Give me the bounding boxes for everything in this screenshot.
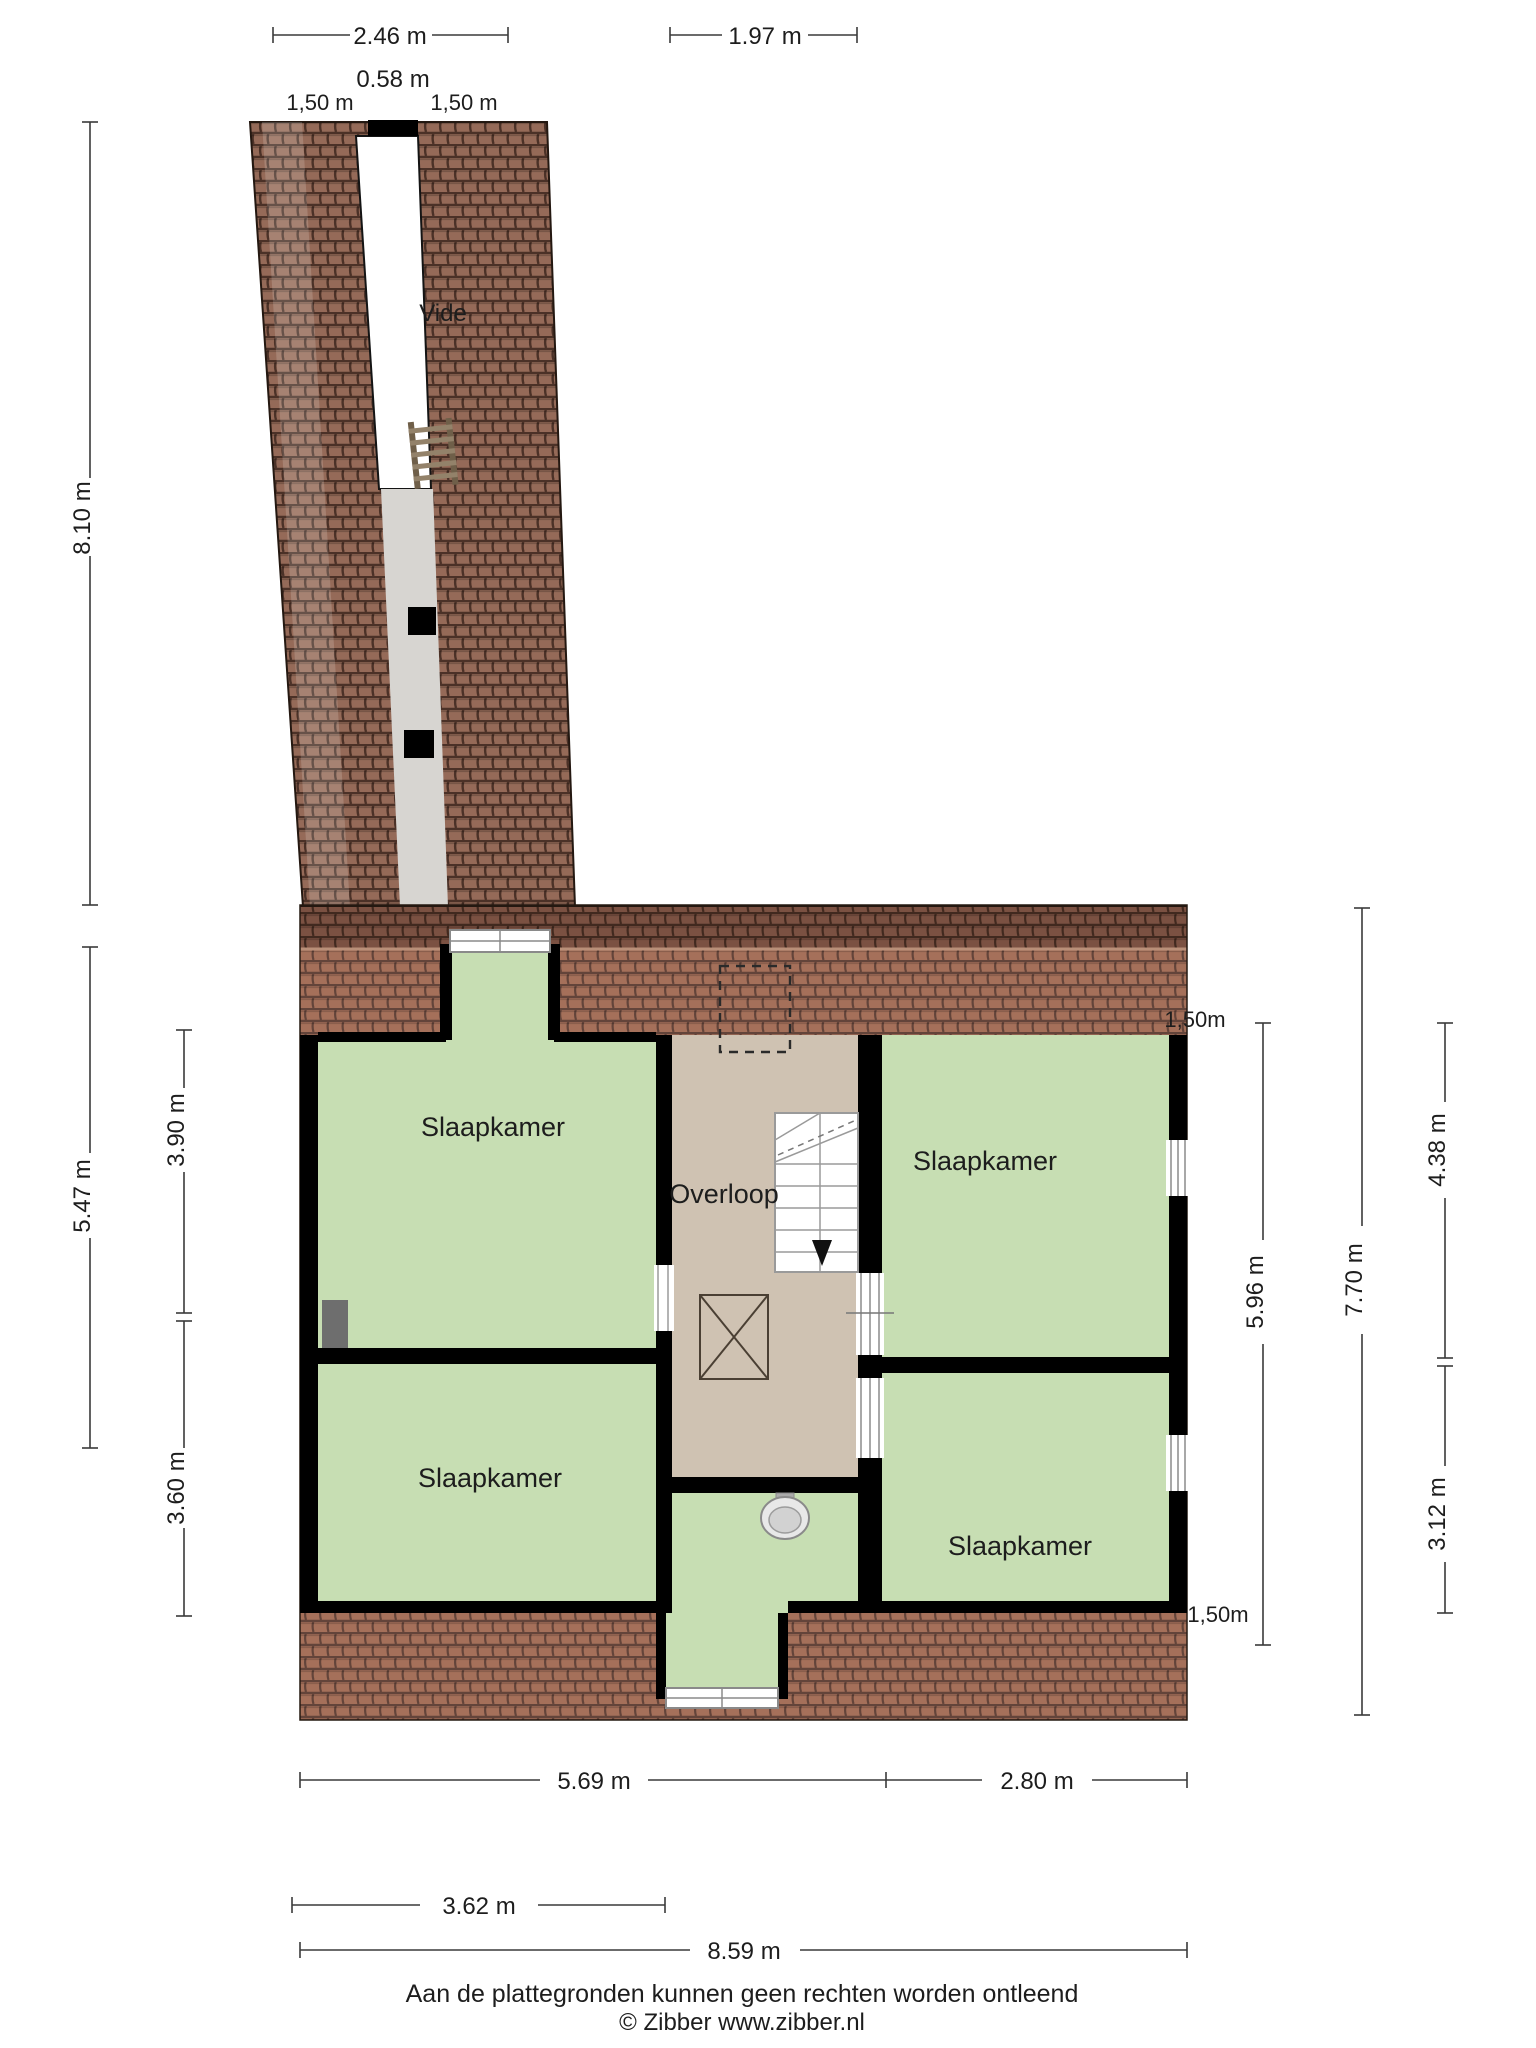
- wall-left-bedrooms: [300, 1348, 656, 1364]
- dim-label-5-69: 5.69 m: [557, 1768, 630, 1795]
- window-right-wall-upper: [1166, 1140, 1190, 1196]
- window-bottom-bump: [666, 1688, 778, 1708]
- label-bedroom-bottom-right: Slaapkamer: [948, 1531, 1092, 1561]
- dim-label-5-96: 5.96 m: [1242, 1255, 1269, 1328]
- dormer-area: [440, 948, 560, 1040]
- footer-disclaimer: Aan de plattegronden kunnen geen rechten…: [406, 1980, 1079, 2008]
- label-bedroom-top-right: Slaapkamer: [913, 1146, 1057, 1176]
- floor-plan-svg: Vide: [0, 0, 1536, 2048]
- dim-label-5-47: 5.47 m: [69, 1159, 96, 1232]
- footer-credit: © Zibber www.zibber.nl: [619, 2009, 865, 2036]
- dormer-wall-right: [548, 944, 560, 1040]
- dim-label-7-70: 7.70 m: [1341, 1243, 1368, 1316]
- window-right-divider-lower: [856, 1378, 884, 1458]
- room-bedroom-top-left: [318, 1035, 656, 1348]
- dim-label-2-80: 2.80 m: [1000, 1768, 1073, 1795]
- door-opening-left-divider: [654, 1265, 674, 1331]
- dim-label-0-58: 0.58 m: [356, 66, 429, 93]
- label-bedroom-top-left: Slaapkamer: [421, 1112, 565, 1142]
- floorplan-page: Vide: [0, 0, 1536, 2048]
- dim-label-4-38: 4.38 m: [1424, 1113, 1451, 1186]
- dim-label-1-97: 1.97 m: [728, 23, 801, 50]
- chimney-block-lower: [404, 730, 434, 758]
- dim-label-1-50-right: 1,50 m: [430, 90, 497, 115]
- roof-band-top-ridge: [300, 905, 1187, 949]
- vide-label: Vide: [419, 300, 467, 327]
- bump-wall-left: [656, 1613, 666, 1699]
- dim-label-3-90: 3.90 m: [163, 1093, 190, 1166]
- dim-label-2-46: 2.46 m: [353, 23, 426, 50]
- rooms: [318, 948, 1169, 1699]
- chimney-breast: [322, 1300, 348, 1348]
- dim-label-3-60: 3.60 m: [163, 1451, 190, 1524]
- room-top-wall-left: [318, 1032, 446, 1042]
- corridor-top-wall: [368, 120, 418, 136]
- label-bedroom-bottom-left: Slaapkamer: [418, 1463, 562, 1493]
- dormer-window: [450, 930, 550, 952]
- corridor-structure: Vide: [250, 120, 575, 907]
- wall-bottom-right: [788, 1601, 1187, 1613]
- wall-right: [1169, 1035, 1187, 1613]
- wall-bottom-left: [300, 1601, 656, 1613]
- room-bedroom-top-right: [882, 1035, 1169, 1357]
- wall-landing-bottom: [672, 1477, 882, 1493]
- dim-label-3-62: 3.62 m: [442, 1893, 515, 1920]
- dim-label-1-50m-bottom: 1,50m: [1187, 1602, 1248, 1627]
- wall-right-bedrooms: [858, 1357, 1169, 1373]
- label-overloop: Overloop: [669, 1179, 779, 1209]
- dim-label-8-10: 8.10 m: [69, 481, 96, 554]
- room-bedroom-bottom-right: [882, 1373, 1169, 1601]
- dim-label-1-50m-top: 1,50m: [1164, 1007, 1225, 1032]
- bottom-bump-area: [656, 1613, 788, 1699]
- chimney-block-upper: [408, 607, 436, 635]
- dormer-wall-left: [440, 944, 452, 1040]
- dim-label-8-59: 8.59 m: [707, 1938, 780, 1965]
- dim-label-1-50-left: 1,50 m: [286, 90, 353, 115]
- wall-left: [300, 1035, 318, 1613]
- bump-wall-right: [778, 1613, 788, 1699]
- dim-label-3-12: 3.12 m: [1424, 1477, 1451, 1550]
- window-right-wall-lower: [1166, 1435, 1190, 1491]
- staircase: [775, 1113, 858, 1272]
- room-top-wall-right: [554, 1032, 656, 1042]
